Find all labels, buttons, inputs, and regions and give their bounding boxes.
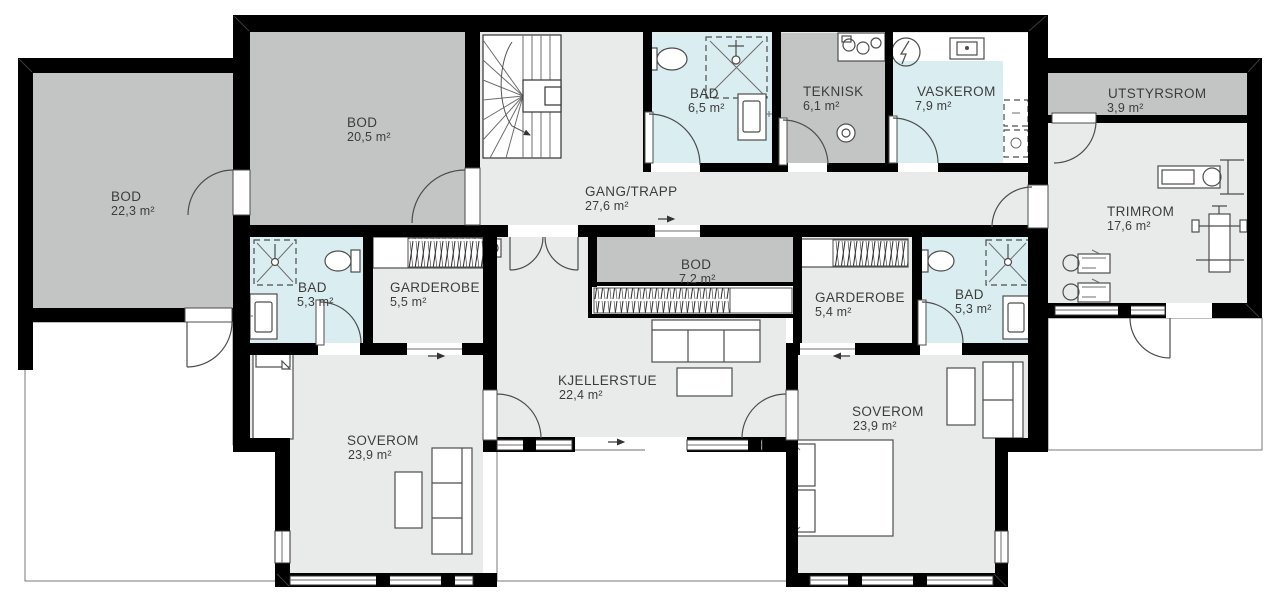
coffee-table	[947, 368, 975, 425]
wardrobe-left-icon	[373, 237, 483, 268]
room-area-soverom-right: 23,9 m²	[853, 419, 897, 433]
room-label-garderobe-right: GARDEROBE	[815, 290, 905, 305]
toilet-icon	[919, 250, 954, 272]
window	[275, 531, 290, 563]
window	[810, 574, 993, 587]
room-label-bod-top: BOD	[347, 115, 377, 130]
room-area-garderobe-left: 5,5 m²	[390, 295, 427, 309]
window	[1055, 304, 1165, 317]
room-area-garderobe-right: 5,4 m²	[815, 305, 852, 319]
stairs	[483, 35, 561, 158]
room-area-bad-top: 6,5 m²	[688, 101, 725, 115]
sofa	[432, 448, 472, 554]
window	[497, 438, 572, 452]
room-area-bod-mid: 7,2 m²	[679, 272, 716, 286]
room-label-bod-left: BOD	[111, 189, 141, 204]
floor-plan-drawing: BOD 22,3 m² BOD 20,5 m² GANG/TRAPP 27,6 …	[0, 0, 1280, 615]
laundry-sink-icon	[950, 38, 984, 59]
coffee-table	[395, 472, 422, 528]
room-label-soverom-right: SOVEROM	[852, 404, 924, 419]
room-area-bad-mid-left: 5,3 m²	[297, 295, 334, 309]
room-label-vaskerom: VASKEROM	[917, 84, 996, 99]
terrace-right	[1048, 318, 1262, 450]
room-label-trimrom: TRIMROM	[1107, 204, 1174, 219]
window	[687, 438, 762, 452]
sofa	[983, 362, 1023, 438]
room-label-gang-trapp: GANG/TRAPP	[585, 184, 678, 199]
room-area-trimrom: 17,6 m²	[1107, 219, 1151, 233]
water-heater-icon	[838, 33, 885, 61]
room-label-bod-mid: BOD	[681, 257, 711, 272]
room-label-kjellerstue: KJELLERSTUE	[558, 373, 657, 388]
window	[995, 531, 1008, 563]
room-area-bad-mid-right: 5,3 m²	[955, 302, 992, 316]
room-label-teknisk: TEKNISK	[803, 84, 864, 99]
room-area-kjellerstue: 22,4 m²	[559, 388, 603, 402]
sink-icon	[247, 294, 277, 339]
wardrobe-right-icon	[798, 239, 908, 267]
room-label-bad-top: BAD	[690, 86, 719, 101]
room-area-gang-trapp: 27,6 m²	[585, 199, 629, 213]
bed-single	[253, 347, 293, 439]
toilet-icon	[325, 250, 360, 272]
room-area-teknisk: 6,1 m²	[803, 99, 840, 113]
room-area-bod-left: 22,3 m²	[111, 204, 155, 218]
window	[290, 574, 473, 587]
room-area-utstyrsrom: 3,9 m²	[1107, 101, 1144, 115]
floor-drain-icon	[837, 124, 855, 142]
room-label-utstyrsrom: UTSTYRSROM	[1108, 86, 1207, 101]
floor-plan: BOD 22,3 m² BOD 20,5 m² GANG/TRAPP 27,6 …	[0, 0, 1280, 615]
room-area-vaskerom: 7,9 m²	[915, 99, 952, 113]
closet-kjellerstue-icon	[590, 284, 796, 316]
room-label-soverom-left: SOVEROM	[347, 433, 419, 448]
terrace-middle	[497, 450, 787, 581]
sofa	[652, 320, 760, 362]
room-label-garderobe-left: GARDEROBE	[390, 280, 480, 295]
bed-double	[790, 440, 893, 536]
room-label-bad-mid-left: BAD	[298, 280, 327, 295]
room-area-bod-top: 20,5 m²	[347, 130, 391, 144]
room-area-soverom-left: 23,9 m²	[348, 448, 392, 462]
room-label-bad-mid-right: BAD	[955, 287, 984, 302]
coffee-table	[677, 368, 732, 396]
